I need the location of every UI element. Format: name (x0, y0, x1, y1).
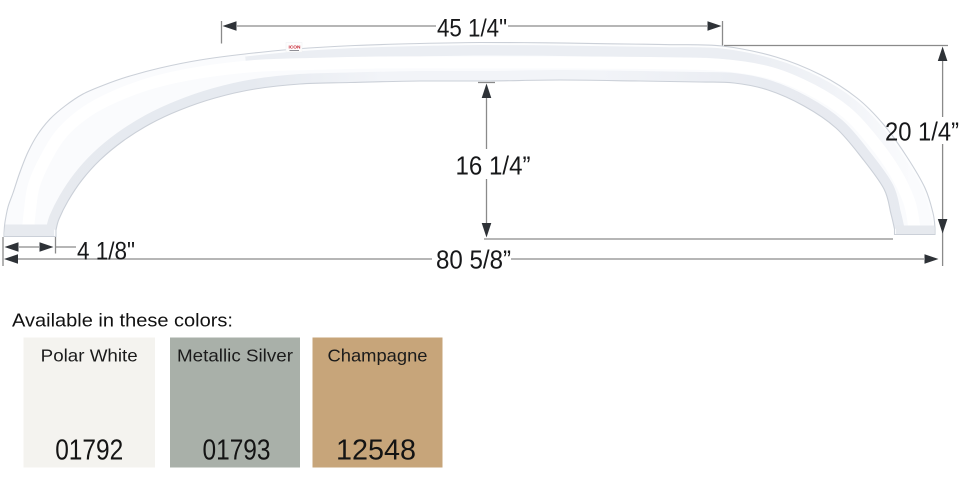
svg-text:16 1/4”: 16 1/4” (456, 150, 531, 180)
svg-text:Metallic Silver: Metallic Silver (177, 346, 293, 366)
svg-text:45 1/4": 45 1/4" (437, 14, 507, 42)
svg-text:80 5/8”: 80 5/8” (436, 244, 511, 274)
svg-text:20 1/4”: 20 1/4” (885, 117, 959, 147)
svg-text:ICON: ICON (289, 45, 302, 51)
svg-text:Available in these colors:: Available in these colors: (12, 310, 233, 331)
svg-text:4 1/8": 4 1/8" (77, 238, 135, 266)
svg-text:01792: 01792 (55, 435, 123, 467)
svg-text:12548: 12548 (336, 435, 416, 467)
svg-text:Champagne: Champagne (328, 346, 428, 366)
svg-text:Polar White: Polar White (41, 346, 138, 366)
svg-text:01793: 01793 (203, 435, 271, 467)
